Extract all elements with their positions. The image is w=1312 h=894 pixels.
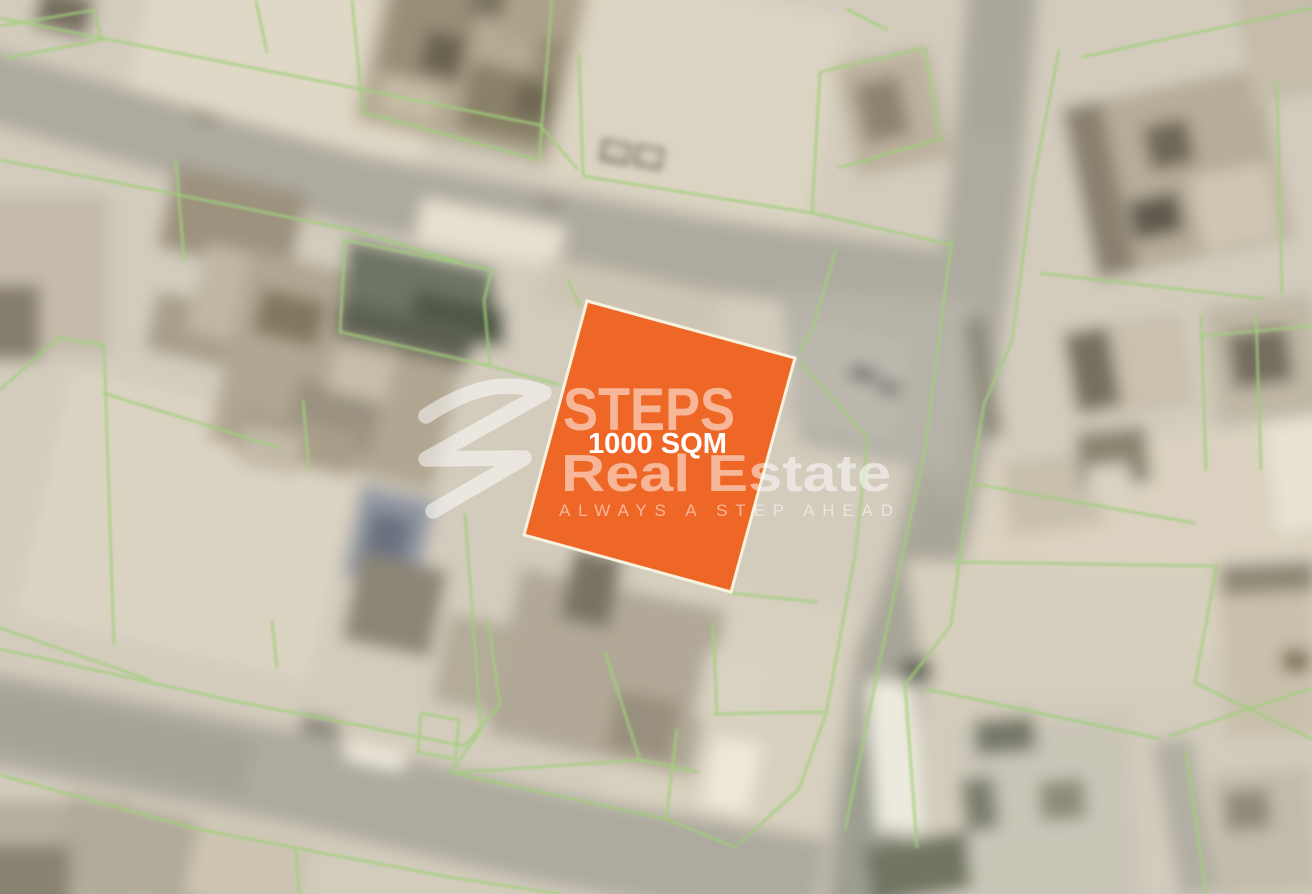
svg-text:ALWAYS A STEP AHEAD: ALWAYS A STEP AHEAD [559,501,893,520]
svg-text:1000 SQM: 1000 SQM [588,428,727,460]
